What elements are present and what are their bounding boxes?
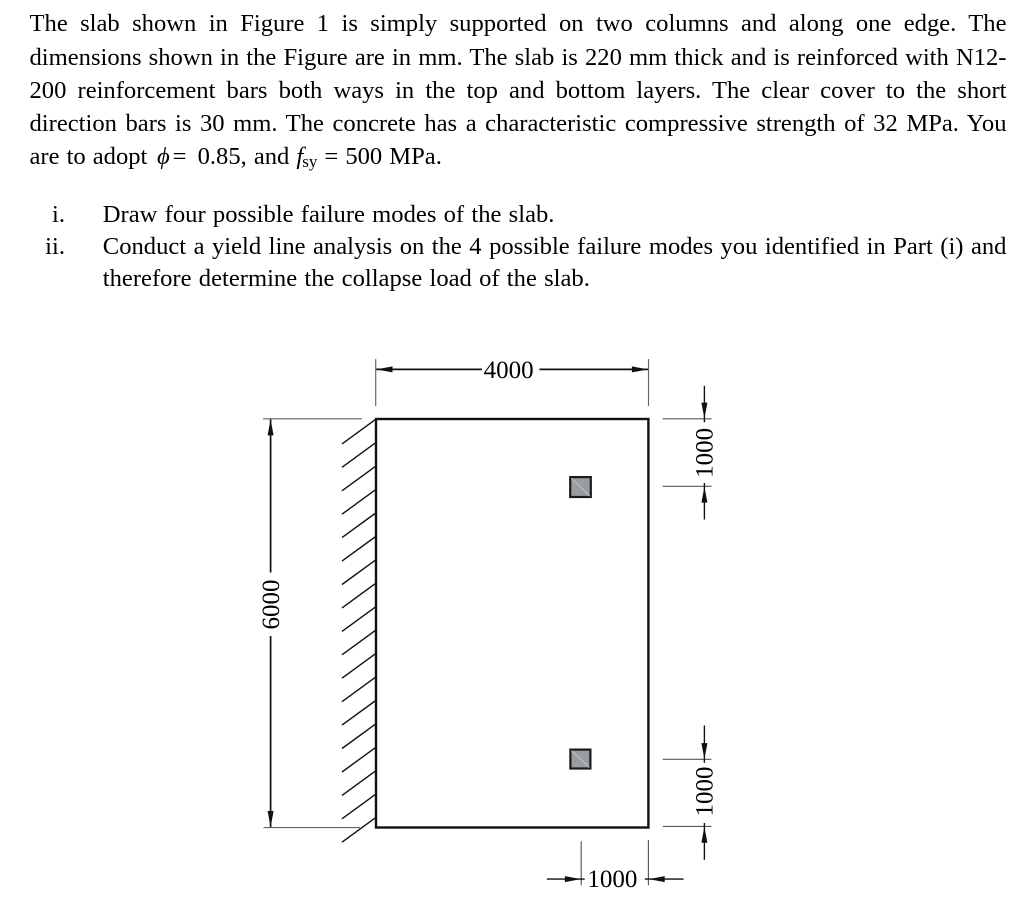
svg-text:4000: 4000: [484, 357, 534, 384]
svg-text:1000: 1000: [587, 866, 637, 893]
svg-text:1000: 1000: [692, 767, 719, 817]
svg-text:6000: 6000: [258, 580, 285, 630]
svg-text:1000: 1000: [692, 428, 719, 478]
